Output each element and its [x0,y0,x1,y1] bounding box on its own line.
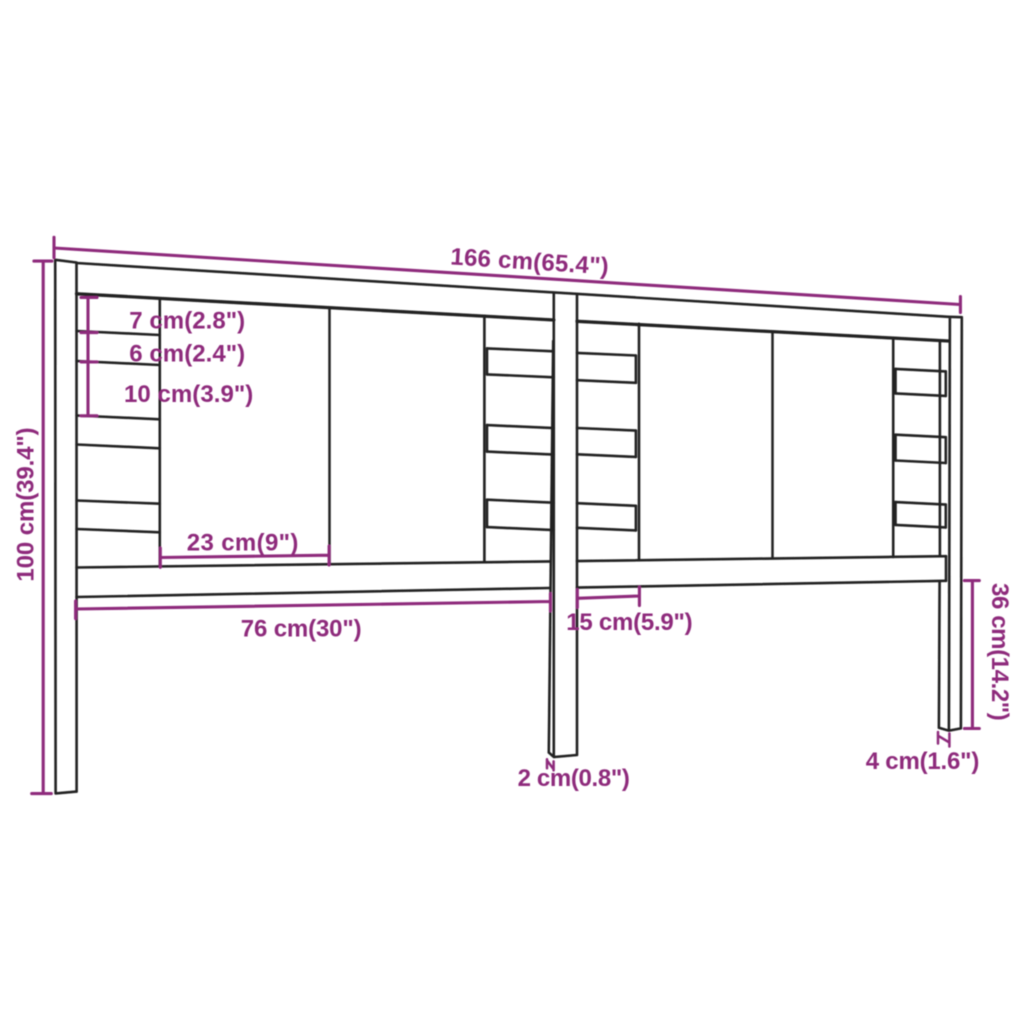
svg-text:23 cm(9"): 23 cm(9") [187,530,299,557]
svg-text:2 cm(0.8"): 2 cm(0.8") [518,765,630,792]
svg-text:6 cm(2.4"): 6 cm(2.4") [129,340,245,367]
svg-text:15 cm(5.9"): 15 cm(5.9") [566,609,692,636]
svg-text:36 cm(14.2"): 36 cm(14.2") [986,583,1013,720]
svg-text:76 cm(30"): 76 cm(30") [241,616,362,643]
svg-text:7 cm(2.8"): 7 cm(2.8") [129,308,245,335]
svg-text:4 cm(1.6"): 4 cm(1.6") [866,748,979,775]
svg-text:100 cm(39.4"): 100 cm(39.4") [13,427,40,581]
svg-text:10 cm(3.9"): 10 cm(3.9") [124,381,253,408]
